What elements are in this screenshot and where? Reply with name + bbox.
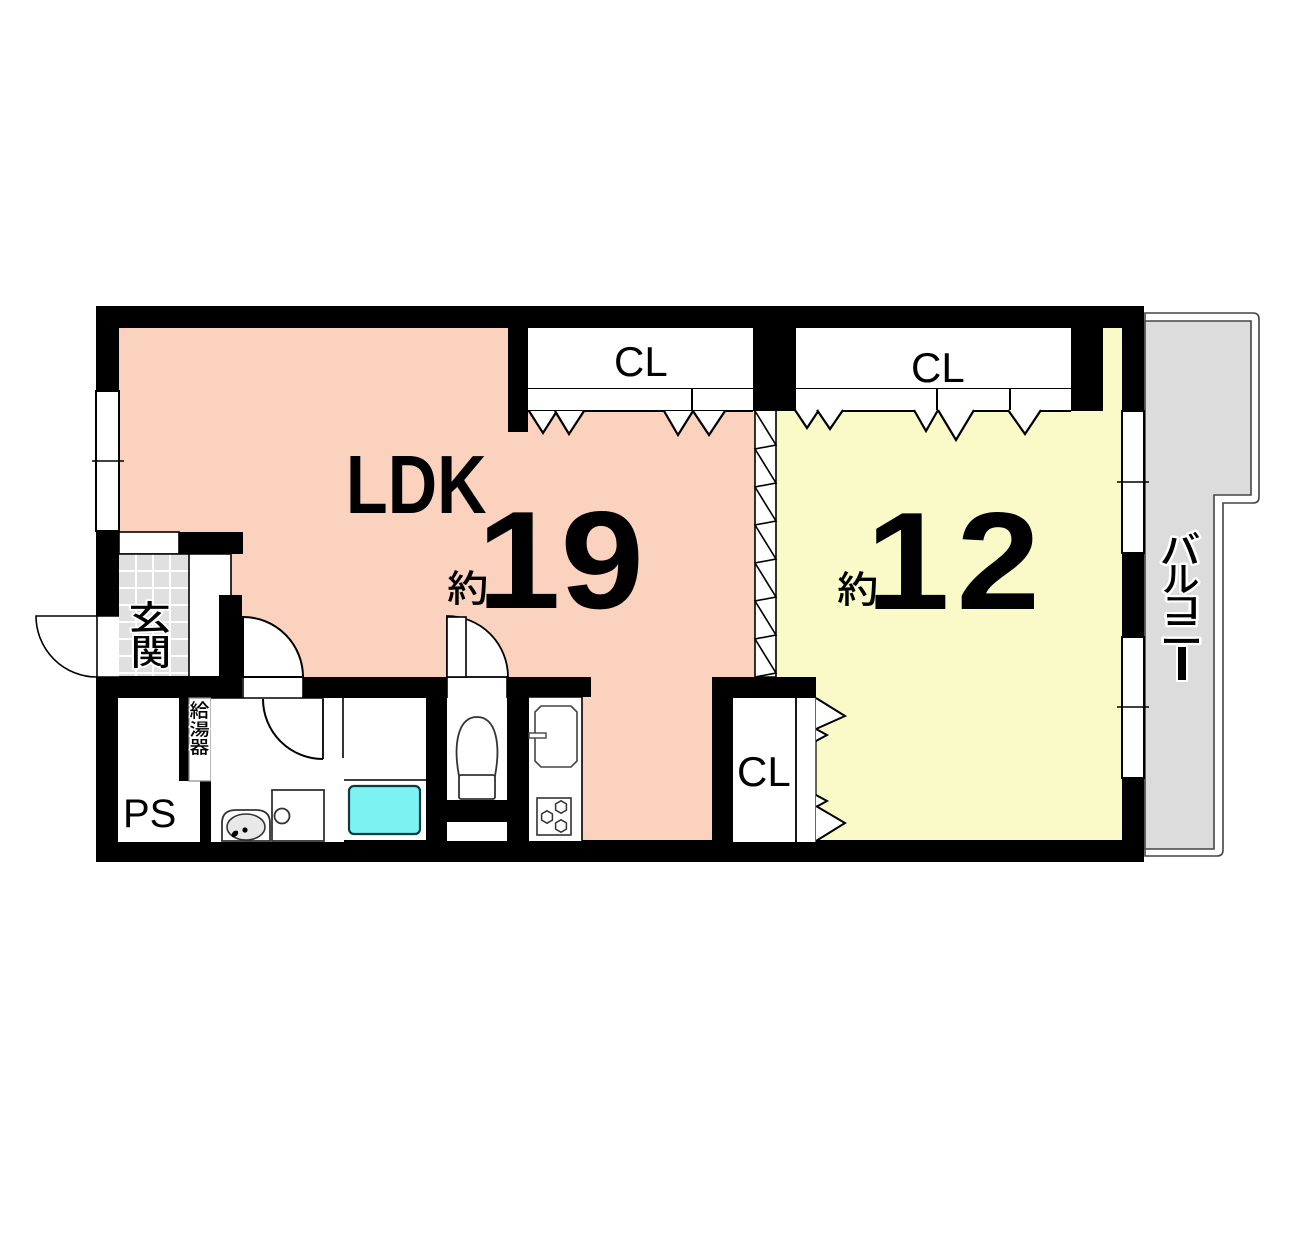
svg-text:CL: CL: [737, 748, 791, 795]
svg-text:CL: CL: [911, 344, 965, 391]
svg-text:19: 19: [477, 482, 644, 638]
svg-text:PS: PS: [123, 792, 176, 836]
svg-text:12: 12: [866, 483, 1047, 639]
svg-text:CL: CL: [614, 338, 668, 385]
svg-text:LDK: LDK: [346, 439, 487, 532]
